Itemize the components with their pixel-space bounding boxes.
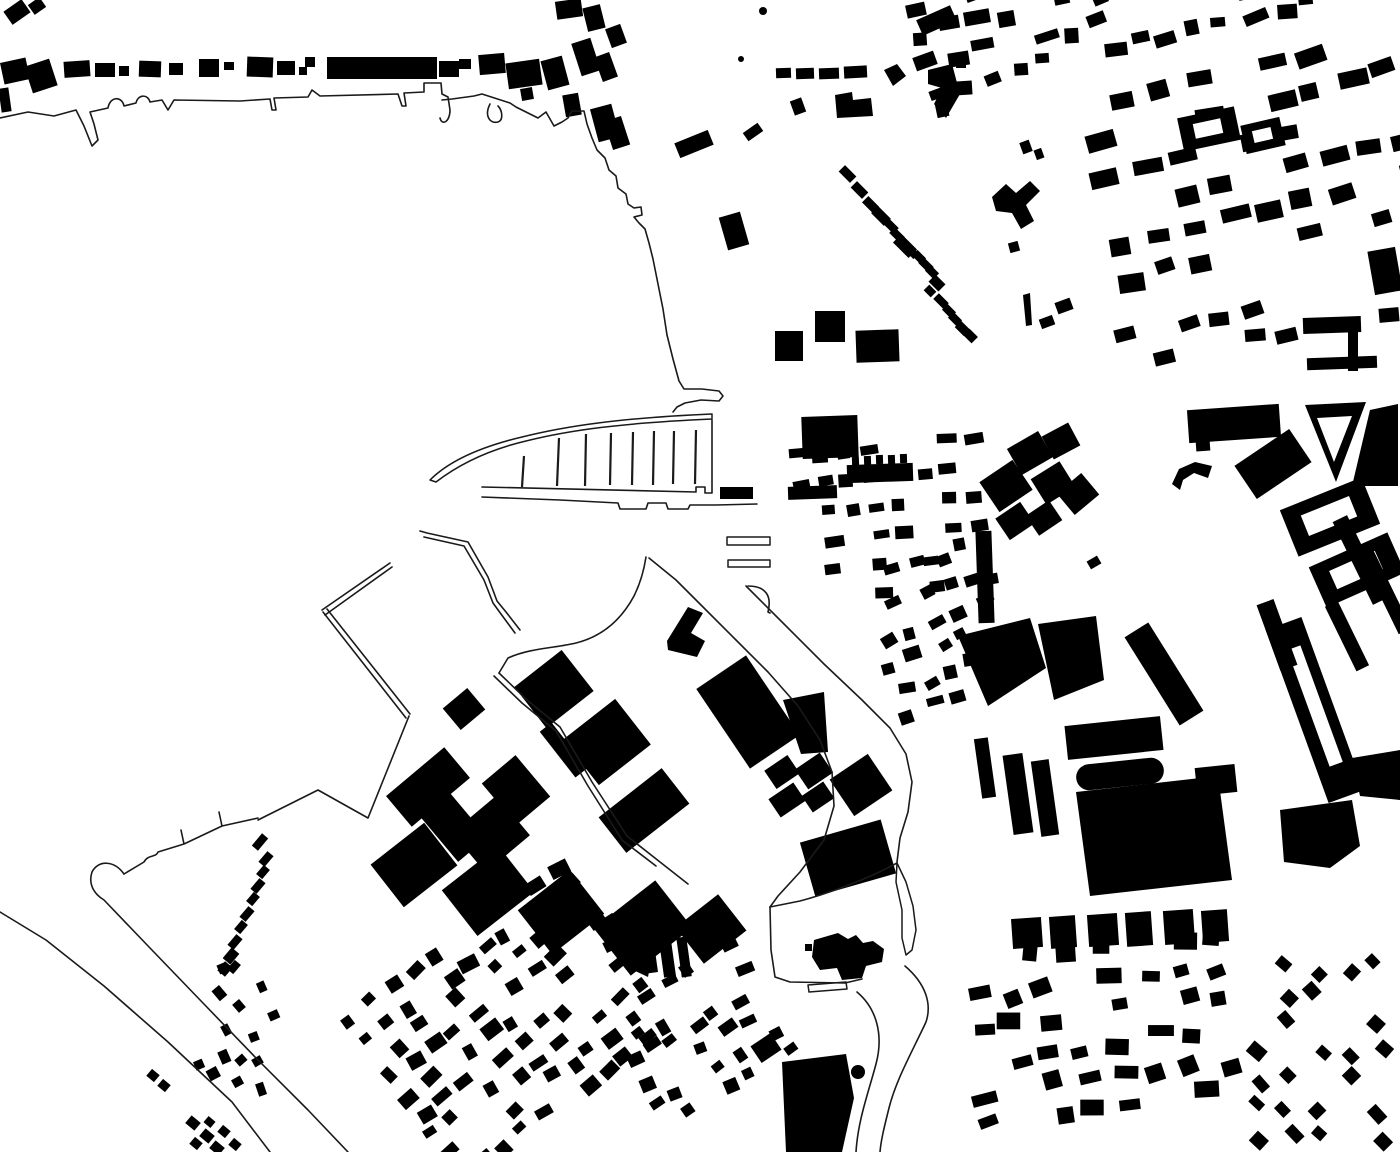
- small-block: [1034, 148, 1045, 160]
- district-building: [438, 1141, 460, 1152]
- district-building: [918, 468, 933, 480]
- district-building: [1294, 44, 1328, 70]
- district-building: [479, 1017, 504, 1041]
- district-building: [479, 937, 497, 954]
- district-building: [928, 614, 947, 630]
- corner-block: [1352, 750, 1400, 800]
- district-building: [1367, 56, 1395, 78]
- marina-slab-edge: [482, 420, 712, 493]
- district-building: [1146, 79, 1170, 102]
- district-building: [405, 1050, 426, 1070]
- midtown-block: [1026, 500, 1063, 536]
- district-building: [1248, 1095, 1265, 1112]
- district-building: [1221, 1058, 1243, 1078]
- breakwater-house: [239, 906, 254, 922]
- district-building: [703, 1006, 718, 1021]
- district-building: [410, 1015, 429, 1032]
- dock-warehouse: [599, 768, 690, 853]
- district-building: [492, 1047, 514, 1069]
- district-building: [1178, 314, 1201, 332]
- map-page: [0, 0, 1400, 1152]
- district-building: [718, 1017, 739, 1037]
- district-building: [971, 1090, 999, 1108]
- district-building: [417, 1104, 438, 1124]
- breakwater-house: [227, 934, 242, 950]
- building-layer: [0, 0, 1400, 1152]
- district-building: [577, 1041, 593, 1057]
- district-building: [549, 1033, 569, 1052]
- district-building: [553, 1004, 572, 1023]
- district-building: [425, 947, 444, 966]
- round-kiosk: [738, 56, 744, 62]
- district-building: [1371, 209, 1393, 227]
- district-building: [1342, 1047, 1360, 1065]
- district-building: [469, 1004, 489, 1023]
- comb-block: [1049, 915, 1077, 949]
- district-building: [895, 525, 914, 539]
- district-building: [924, 676, 941, 691]
- dock-warehouse: [768, 782, 805, 817]
- district-building: [902, 627, 915, 641]
- northeast-block: [956, 58, 966, 68]
- district-building: [938, 462, 957, 474]
- district-building: [361, 992, 376, 1007]
- district-building: [1078, 1070, 1101, 1086]
- old-town-mass: [782, 1054, 854, 1152]
- district-building: [1373, 1132, 1393, 1152]
- comb-tooth: [876, 455, 883, 464]
- corner-block: [0, 87, 12, 112]
- district-building: [1279, 1066, 1297, 1084]
- northeast-block: [884, 64, 906, 86]
- district-building: [1028, 976, 1053, 998]
- comb-tooth: [900, 454, 907, 463]
- district-building: [690, 1016, 709, 1034]
- quay-row-house: [169, 63, 183, 75]
- district-building: [248, 1031, 260, 1043]
- east-bar: [1378, 307, 1399, 323]
- district-building: [1280, 989, 1299, 1008]
- district-building: [1207, 175, 1233, 195]
- district-east-mid-band: [1113, 292, 1299, 377]
- wedge-block: [1038, 616, 1104, 700]
- district-building: [1297, 223, 1323, 241]
- district-building: [1298, 82, 1319, 102]
- district-building: [1246, 1040, 1268, 1062]
- district-building: [385, 974, 405, 993]
- canal-east-bank: [880, 966, 928, 1152]
- district-building: [1114, 1066, 1138, 1079]
- district-building: [1285, 1124, 1305, 1144]
- district-building: [1208, 311, 1230, 327]
- vertical-slab: [1031, 759, 1059, 837]
- district-building: [975, 1024, 995, 1036]
- quay-row-house: [247, 57, 274, 78]
- district-building: [898, 709, 915, 726]
- breakwater-house: [250, 878, 265, 894]
- district-building: [952, 537, 966, 551]
- round-kiosk: [759, 7, 767, 15]
- district-building: [534, 1103, 554, 1120]
- district-building: [390, 1038, 410, 1058]
- district-building: [1337, 67, 1370, 89]
- district-building: [1194, 1080, 1220, 1097]
- district-building: [711, 1060, 725, 1074]
- district-building: [457, 953, 481, 974]
- quay-row-house: [407, 61, 421, 75]
- district-building: [963, 8, 991, 26]
- district-layer: [182, 0, 1400, 1152]
- district-building: [880, 632, 899, 650]
- thin-pier: [420, 531, 520, 633]
- district-building: [873, 529, 890, 539]
- district-building: [505, 977, 524, 996]
- district-building: [1037, 1044, 1059, 1060]
- district-building: [506, 1101, 524, 1119]
- district-building: [397, 1088, 420, 1110]
- quay-shed: [720, 487, 753, 499]
- district-building: [1070, 1045, 1088, 1060]
- quay-row-house: [119, 66, 129, 76]
- district-building: [1090, 0, 1109, 7]
- district-building: [1096, 968, 1122, 984]
- coast-hook-spit: [488, 104, 502, 122]
- district-building: [731, 994, 750, 1010]
- district-building: [905, 2, 927, 19]
- district-building: [667, 1086, 683, 1101]
- district-building: [231, 1076, 244, 1089]
- district-building: [822, 505, 835, 515]
- district-building: [824, 563, 841, 575]
- district-building: [1390, 132, 1400, 153]
- district-building: [868, 503, 884, 513]
- district-building: [1053, 0, 1071, 6]
- quay-row-house: [427, 57, 437, 65]
- block-slab: [1187, 404, 1281, 443]
- breakwater-house: [185, 1115, 201, 1130]
- district-building: [1249, 1131, 1269, 1151]
- district-building: [267, 1009, 280, 1021]
- hill-block: [555, 0, 583, 20]
- district-building: [359, 1032, 373, 1045]
- district-building: [936, 552, 952, 567]
- district-building: [592, 1009, 607, 1024]
- district-building: [722, 1077, 740, 1095]
- district-building: [377, 1013, 394, 1030]
- curved-bar: [1172, 462, 1212, 490]
- district-building: [1147, 228, 1170, 244]
- district-building: [1277, 1010, 1296, 1029]
- district-building: [948, 689, 966, 705]
- district-building: [1298, 0, 1313, 5]
- l-building: [835, 92, 873, 118]
- district-building: [970, 37, 994, 52]
- dock-warehouse: [696, 655, 799, 768]
- boomerang-building: [667, 607, 705, 657]
- wedge-slab: [1234, 429, 1311, 499]
- district-building: [881, 662, 896, 676]
- district-building: [1014, 63, 1029, 76]
- quay-row-house: [277, 61, 295, 75]
- breakwater-house: [189, 1137, 202, 1150]
- quay-row-house: [224, 62, 234, 70]
- hill-block: [505, 59, 542, 89]
- quay-row-house: [305, 57, 315, 67]
- district-building: [891, 499, 904, 512]
- station-hall: [1064, 716, 1163, 760]
- district-building: [1258, 53, 1287, 71]
- quay-row-house: [63, 60, 90, 78]
- dock-warehouse: [442, 846, 534, 936]
- slope-bar: [743, 123, 763, 142]
- district-building: [380, 1066, 398, 1084]
- district-building: [1142, 971, 1160, 982]
- district-building: [494, 928, 510, 945]
- district-building: [1288, 188, 1313, 210]
- district-building: [1119, 1098, 1141, 1111]
- north-seawall: [0, 83, 450, 146]
- district-building: [482, 1080, 499, 1097]
- quay-row-house: [459, 59, 471, 69]
- hill-block: [562, 93, 582, 117]
- district-building: [1268, 89, 1299, 112]
- district-building: [1153, 348, 1176, 366]
- district-building: [1364, 953, 1380, 969]
- district-building: [1252, 1074, 1271, 1093]
- district-building: [1343, 963, 1361, 981]
- district-southeast-diagonal-houses: [1246, 953, 1394, 1152]
- market-hall: [801, 415, 858, 459]
- west-basin-edge: [323, 609, 410, 718]
- district-building: [632, 977, 648, 993]
- breakwater-house: [234, 920, 248, 934]
- east-dock-pier: [728, 560, 770, 567]
- district-building: [625, 1011, 641, 1027]
- district-building: [1188, 254, 1212, 275]
- coastline-layer: [0, 83, 928, 1152]
- wedge-block: [958, 618, 1046, 706]
- district-building: [1254, 199, 1284, 222]
- east-bar: [1367, 247, 1400, 295]
- district-building: [1275, 955, 1293, 972]
- district-building: [1042, 1069, 1063, 1090]
- district-building: [193, 1059, 205, 1071]
- small-block: [1087, 556, 1102, 570]
- district-building: [528, 1054, 548, 1072]
- district-building: [477, 1148, 492, 1152]
- district-building: [1308, 1101, 1327, 1120]
- district-building: [1148, 1025, 1174, 1036]
- district-building: [1104, 42, 1128, 58]
- district-building: [898, 681, 916, 694]
- fort-spit: [896, 863, 916, 955]
- district-building: [938, 638, 953, 652]
- district-building: [567, 1056, 585, 1074]
- district-building: [733, 1047, 749, 1064]
- district-building: [818, 475, 834, 487]
- district-building: [1302, 981, 1322, 1001]
- district-building: [1277, 4, 1298, 20]
- comb-block: [1125, 911, 1153, 947]
- northeast-block: [912, 51, 937, 72]
- y-building: [992, 181, 1040, 229]
- district-building: [462, 1043, 478, 1061]
- district-building: [217, 1049, 231, 1065]
- district-building: [1085, 10, 1107, 28]
- north-row-house: [796, 68, 814, 80]
- district-building: [512, 1066, 531, 1085]
- district-building: [1056, 1106, 1074, 1125]
- comb-tooth: [852, 457, 859, 466]
- comb-block: [1163, 909, 1195, 945]
- district-building: [406, 960, 426, 980]
- sliver-block: [1023, 293, 1032, 326]
- west-basin-breakwater: [322, 563, 392, 615]
- district-building: [255, 1082, 267, 1097]
- hill-block: [478, 53, 506, 75]
- district-building: [1283, 153, 1309, 174]
- small-block: [1039, 315, 1056, 329]
- district-building: [1274, 327, 1298, 345]
- district-building: [943, 664, 958, 680]
- district-building: [1375, 1039, 1394, 1058]
- district-building: [1342, 1066, 1361, 1085]
- corner-block: [0, 58, 30, 85]
- east-bar: [1348, 325, 1358, 371]
- breakwater-house: [203, 1116, 215, 1128]
- slope-bar: [719, 212, 750, 251]
- district-northeast-grid: [1070, 22, 1400, 297]
- breakwater-house: [256, 865, 270, 879]
- small-shed: [1196, 441, 1211, 452]
- marina-finger-piers: [522, 430, 696, 487]
- district-building: [212, 985, 228, 1001]
- breakwater-house: [209, 1140, 225, 1152]
- district-building: [1244, 328, 1265, 342]
- district-building: [693, 1041, 707, 1055]
- hill-block: [520, 87, 534, 101]
- hill-block: [540, 56, 569, 91]
- district-building: [860, 444, 879, 456]
- district-building: [997, 1013, 1021, 1030]
- district-building: [555, 965, 575, 984]
- district-building: [453, 1072, 474, 1092]
- district-building: [1174, 185, 1200, 208]
- breakwater-house: [258, 851, 273, 867]
- district-building: [1035, 53, 1049, 64]
- district-building: [942, 492, 956, 504]
- dock-warehouse: [764, 755, 800, 789]
- district-building: [420, 1066, 442, 1088]
- district-building: [824, 535, 845, 549]
- breakwater-house: [228, 1138, 241, 1151]
- district-building: [1117, 272, 1146, 294]
- district-building: [1080, 1100, 1103, 1116]
- north-row-house: [819, 68, 839, 80]
- district-building: [1040, 1014, 1062, 1032]
- figure-ground-map: [0, 0, 1400, 1152]
- corner-block: [28, 0, 46, 15]
- quay-shed: [788, 485, 837, 500]
- west-basin-zigzag: [258, 716, 409, 820]
- district-building: [443, 1023, 461, 1040]
- district-building: [926, 695, 945, 707]
- district-building: [340, 1015, 355, 1030]
- district-building: [1210, 17, 1226, 28]
- street-chain-house: [851, 181, 869, 199]
- district-building: [1109, 237, 1132, 258]
- district-building: [978, 1113, 999, 1129]
- district-building: [649, 1095, 666, 1110]
- east-bar: [1307, 356, 1377, 370]
- small-block: [1019, 140, 1033, 155]
- district-building: [909, 555, 926, 568]
- district-building: [580, 1074, 603, 1096]
- district-building: [1206, 963, 1226, 980]
- district-building: [256, 980, 268, 993]
- district-building: [997, 10, 1016, 28]
- district-building: [445, 987, 465, 1007]
- breakwater-house: [252, 833, 268, 850]
- district-building: [739, 1014, 757, 1029]
- district-building: [1105, 1038, 1129, 1055]
- fort-annex: [805, 944, 812, 951]
- vertical-slab: [974, 737, 996, 798]
- small-block: [1054, 298, 1073, 315]
- dock-warehouse: [830, 754, 893, 816]
- district-building: [1109, 91, 1134, 111]
- slope-bar: [674, 130, 713, 158]
- district-building: [1111, 997, 1128, 1011]
- marina-breakwater-band: [430, 414, 712, 482]
- district-building: [543, 1065, 562, 1082]
- north-row-house: [776, 68, 791, 79]
- district-building: [1113, 325, 1136, 343]
- district-building: [1183, 220, 1206, 236]
- square-pavilion: [775, 331, 803, 361]
- district-building: [964, 432, 985, 446]
- quay-row-house: [439, 61, 459, 77]
- district-building: [512, 1120, 526, 1134]
- district-building: [966, 491, 982, 504]
- district-building: [783, 1041, 798, 1055]
- district-breakwater-village: [182, 960, 302, 1100]
- district-building: [1311, 966, 1328, 983]
- tall-slab: [975, 531, 994, 624]
- comb-block: [1201, 909, 1229, 943]
- district-building: [971, 519, 989, 533]
- dock-warehouse: [443, 688, 486, 730]
- district-building: [1209, 991, 1226, 1007]
- map-canvas: [0, 0, 1400, 1152]
- district-building: [1177, 1054, 1200, 1077]
- district-building: [1153, 30, 1177, 49]
- district-building: [1132, 157, 1164, 176]
- district-building: [902, 645, 923, 663]
- district-building: [875, 587, 893, 599]
- district-building: [251, 1055, 264, 1067]
- district-building: [1315, 1045, 1332, 1061]
- district-building: [1088, 167, 1119, 190]
- square-pavilion: [855, 329, 899, 362]
- district-building: [441, 1109, 458, 1126]
- district-building: [968, 985, 992, 1001]
- district-building: [1184, 19, 1200, 37]
- district-building: [1367, 1104, 1388, 1125]
- district-building: [638, 1076, 657, 1094]
- square-pavilion: [815, 311, 845, 342]
- district-building: [680, 1102, 696, 1117]
